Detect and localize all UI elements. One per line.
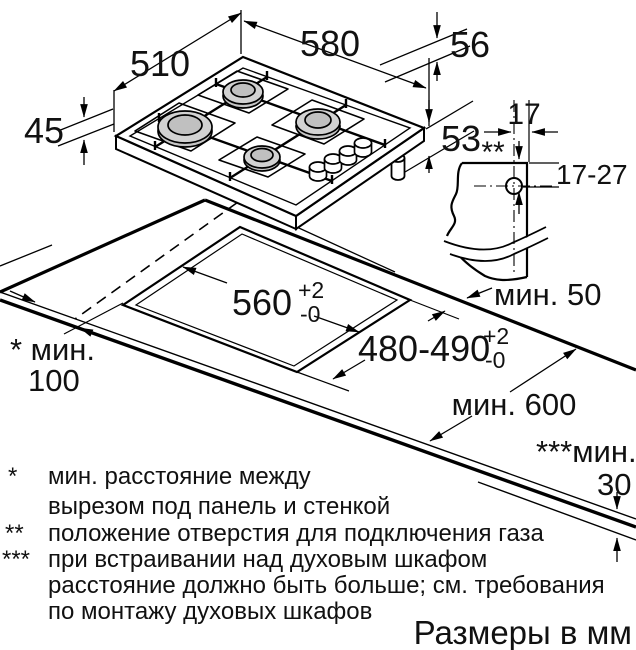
dim-oven-clearance-value: 30 xyxy=(597,467,631,502)
footnote-marker-3: *** xyxy=(2,546,30,573)
dim-side-clearance-value: 100 xyxy=(28,363,80,398)
footnote-3-line-2: расстояние должно быть больше; см. требо… xyxy=(48,572,605,599)
dim-cutout-width: 560 +2 -0 xyxy=(232,277,324,327)
dim-56: 56 xyxy=(450,24,490,65)
footnote-3-line-1: при встраивании над духовым шкафом xyxy=(48,546,487,573)
burner-rear xyxy=(223,80,263,108)
dim-oven-clearance-label: ***мин. xyxy=(536,434,636,469)
dim-conn-range: 17-27 xyxy=(556,159,628,190)
dim-depth: 510 xyxy=(130,43,190,84)
burner-front xyxy=(244,146,280,171)
burner-right xyxy=(296,109,340,139)
section-break-edge xyxy=(447,163,462,236)
cutout-depth-tol-sup: +2 xyxy=(483,323,509,349)
cutout-depth-tol-sub: -0 xyxy=(485,347,505,373)
cutout-width-tol-sub: -0 xyxy=(300,301,320,327)
dim-53: 53 xyxy=(441,118,481,159)
manual-page: 510 580 45 56 53 17 ** 17-27 560 +2 -0 4… xyxy=(0,0,636,650)
burner-left xyxy=(158,111,212,147)
dim-conn-offset: 17 xyxy=(507,98,540,131)
dim-cutout-depth: 480-490 +2 -0 xyxy=(358,323,509,373)
svg-text:480-490: 480-490 xyxy=(358,328,490,369)
dim-side-clearance-label: * мин. xyxy=(10,332,95,367)
conn-marker: ** xyxy=(481,136,505,169)
footnote-marker-1: * xyxy=(8,463,17,490)
dim-rear-clearance: мин. 50 xyxy=(494,277,601,312)
footnote-2-line-1: положение отверстия для подключения газа xyxy=(48,520,545,547)
svg-text:560: 560 xyxy=(232,282,292,323)
installation-diagram: 510 580 45 56 53 17 ** 17-27 560 +2 -0 4… xyxy=(0,0,636,650)
cutout-width-tol-sup: +2 xyxy=(298,277,324,303)
page-title: Размеры в мм xyxy=(414,614,632,650)
footnote-1-line-1: мин. расстояние между xyxy=(48,463,311,490)
dim-worktop-depth: мин. 600 xyxy=(452,387,577,422)
footnote-1-line-2: вырезом под панель и стенкой xyxy=(48,493,390,520)
footnote-marker-2: ** xyxy=(5,520,24,547)
projection-dashed-line xyxy=(75,192,252,319)
footnote-3-line-3: по монтажу духовых шкафов xyxy=(48,598,372,625)
dim-height: 45 xyxy=(24,110,64,151)
footnotes: * мин. расстояние между вырезом под пане… xyxy=(2,463,605,625)
dim-width: 580 xyxy=(300,23,360,64)
